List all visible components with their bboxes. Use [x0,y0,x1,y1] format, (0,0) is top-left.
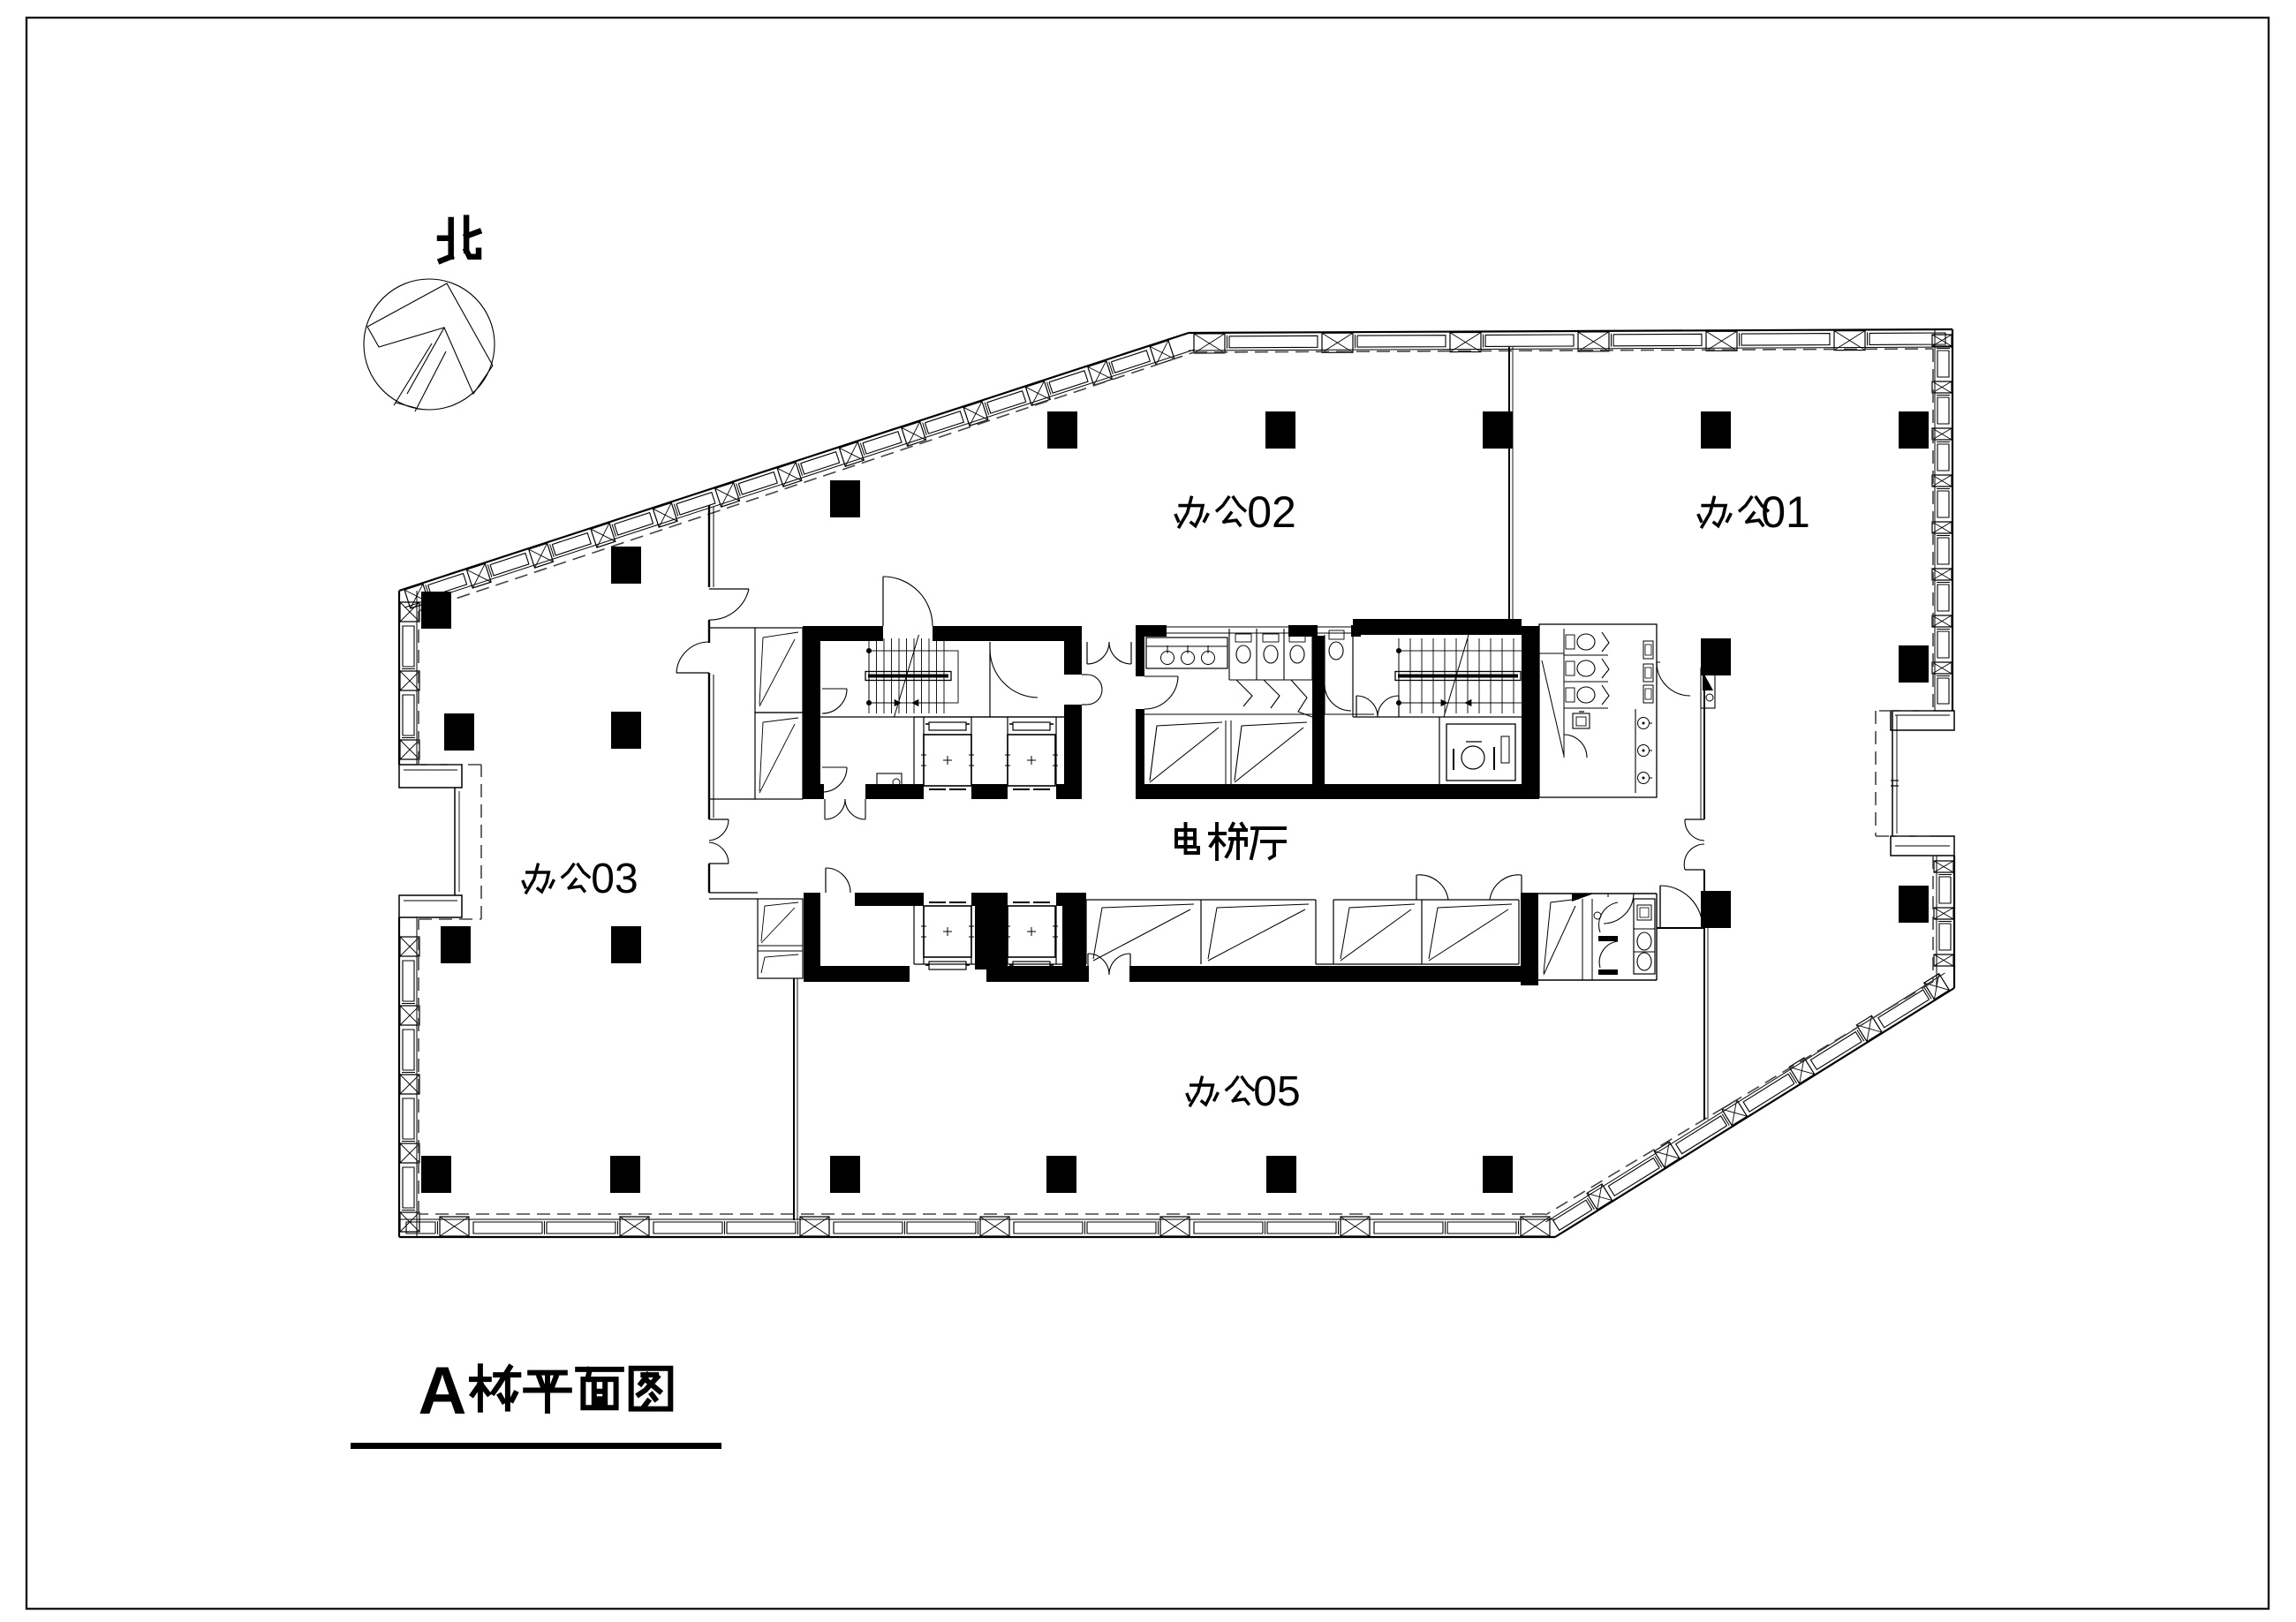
svg-text:01: 01 [1761,487,1810,537]
svg-text:03: 03 [591,856,638,902]
svg-text:A: A [419,1354,467,1429]
svg-text:02: 02 [1247,487,1296,537]
svg-text:05: 05 [1253,1068,1300,1115]
